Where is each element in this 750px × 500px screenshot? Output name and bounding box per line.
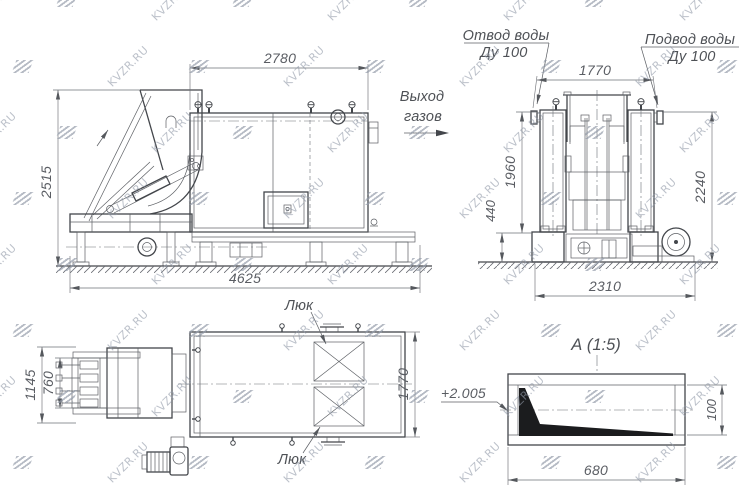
fuel-feeder-plan [56,348,186,418]
boiler-body-plan [178,324,412,446]
dim-side-length: 4625 [229,270,261,286]
under-frame [66,232,415,266]
dim-plan-height-outer: 1145 [22,369,38,400]
dim-front-height-upper: 1960 [502,156,518,188]
valve-icon [638,99,644,110]
dim-detail-elevation: +2.005 [441,385,486,401]
dim-front-height-right: 2240 [692,171,708,204]
bolt-icon [192,417,200,422]
front-view: 1770 1960 440 2240 2310 Отвод воды Ду 10… [463,28,739,301]
feeder-screws [56,361,98,407]
ground-hatch [478,262,718,269]
fuel-hopper [70,90,203,266]
water-outlet-nozzle [531,111,540,124]
valve-icon [206,102,212,113]
foundation-block [532,232,564,262]
gas-label-line1: Выход [400,89,445,105]
hatch-bottom [314,387,364,426]
fan-motor-plan [142,437,188,475]
valve-icon [308,102,314,113]
bolt-icon [231,437,236,445]
drawing-canvas: 2780 2515 4625 Выход газов [0,0,750,500]
boiler-body-side [190,102,378,232]
bolt-icon [356,324,361,332]
cad-drawing: 2780 2515 4625 Выход газов [0,0,750,500]
detail-title: А (1:5) [570,336,621,354]
dim-front-height-lower: 440 [483,199,498,221]
base-frame [70,214,192,266]
dim-detail-height: 100 [704,398,719,420]
dim-detail-width: 680 [584,462,608,478]
foundation-block [630,232,658,262]
dim-front-width-top: 1770 [579,62,611,78]
dim-plan-height-inner: 760 [40,371,56,395]
water-inlet-callout: Подвод воды Ду 100 [641,32,739,105]
hatch-label-top: Люк [284,298,314,314]
gas-outlet-label: Выход газов [400,89,449,136]
hatch-top [314,342,364,381]
dim-front-width-bottom: 2310 [588,278,621,294]
side-view: 2780 2515 4625 [38,50,432,293]
outlet-label-line1: Отвод воды [463,28,550,44]
dim-side-height: 2515 [38,166,54,199]
water-outlet-callout: Отвод воды Ду 100 [463,28,550,104]
valve-icon [349,102,355,113]
bolt-icon [192,348,200,353]
blower-fan [633,228,694,262]
outlet-label-line2: Ду 100 [478,45,527,61]
inlet-label-line2: Ду 100 [666,49,715,65]
gas-direction-arrow-icon [436,130,449,136]
bolt-icon [280,324,285,332]
gas-label-line2: газов [404,109,442,125]
ash-drive [566,234,632,262]
dim-side-width: 2780 [263,50,296,66]
plan-view: 1145 760 1770 Люк Люк [22,298,420,475]
inspection-door [264,192,308,228]
inlet-label-line1: Подвод воды [645,32,735,48]
water-inlet-nozzle [654,111,663,124]
valve-icon [553,99,559,110]
dim-plan-height-right: 1770 [395,368,411,400]
detail-view: А (1:5) 680 100 +2.005 [441,336,727,485]
bolt-icon [290,437,295,445]
scraper-wedge [519,388,673,436]
hatch-label-bottom: Люк [277,452,307,468]
